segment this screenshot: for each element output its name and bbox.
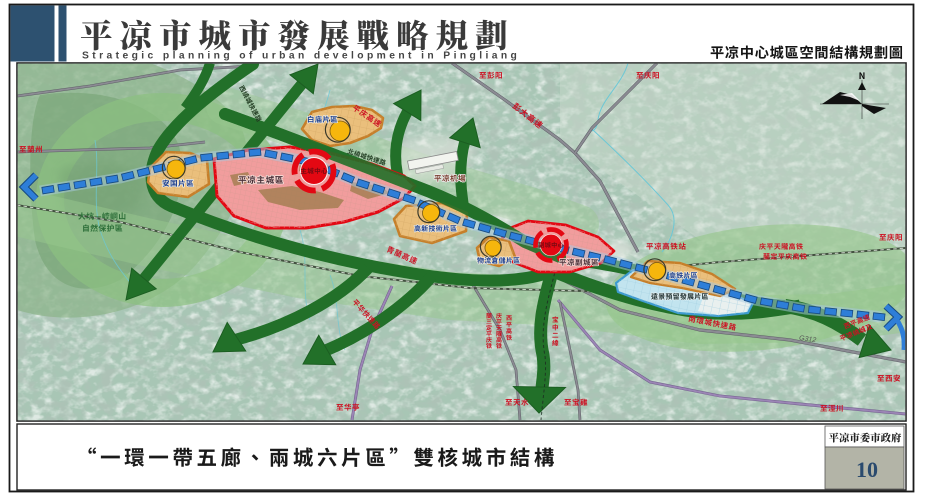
svg-text:10: 10 xyxy=(856,457,878,482)
svg-text:Strategic planning of urban de: Strategic planning of urban development … xyxy=(82,50,520,61)
